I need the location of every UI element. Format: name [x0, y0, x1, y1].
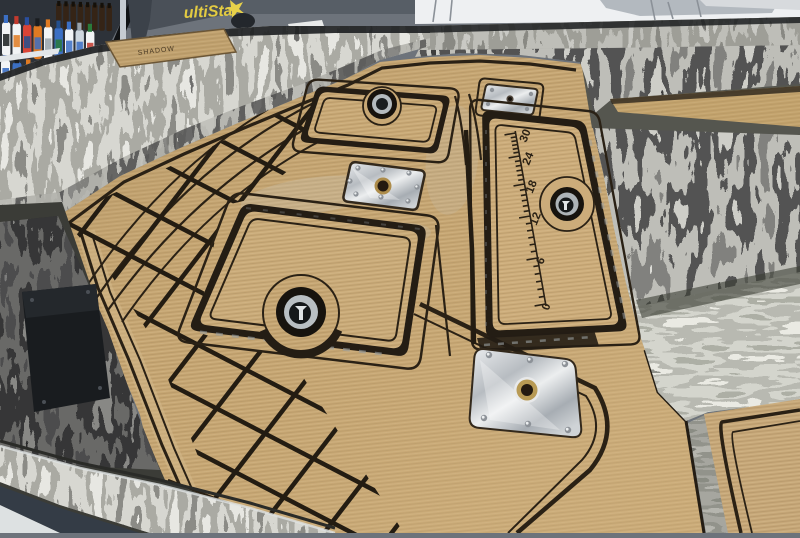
svg-text:ultiSta: ultiSta: [183, 2, 233, 22]
